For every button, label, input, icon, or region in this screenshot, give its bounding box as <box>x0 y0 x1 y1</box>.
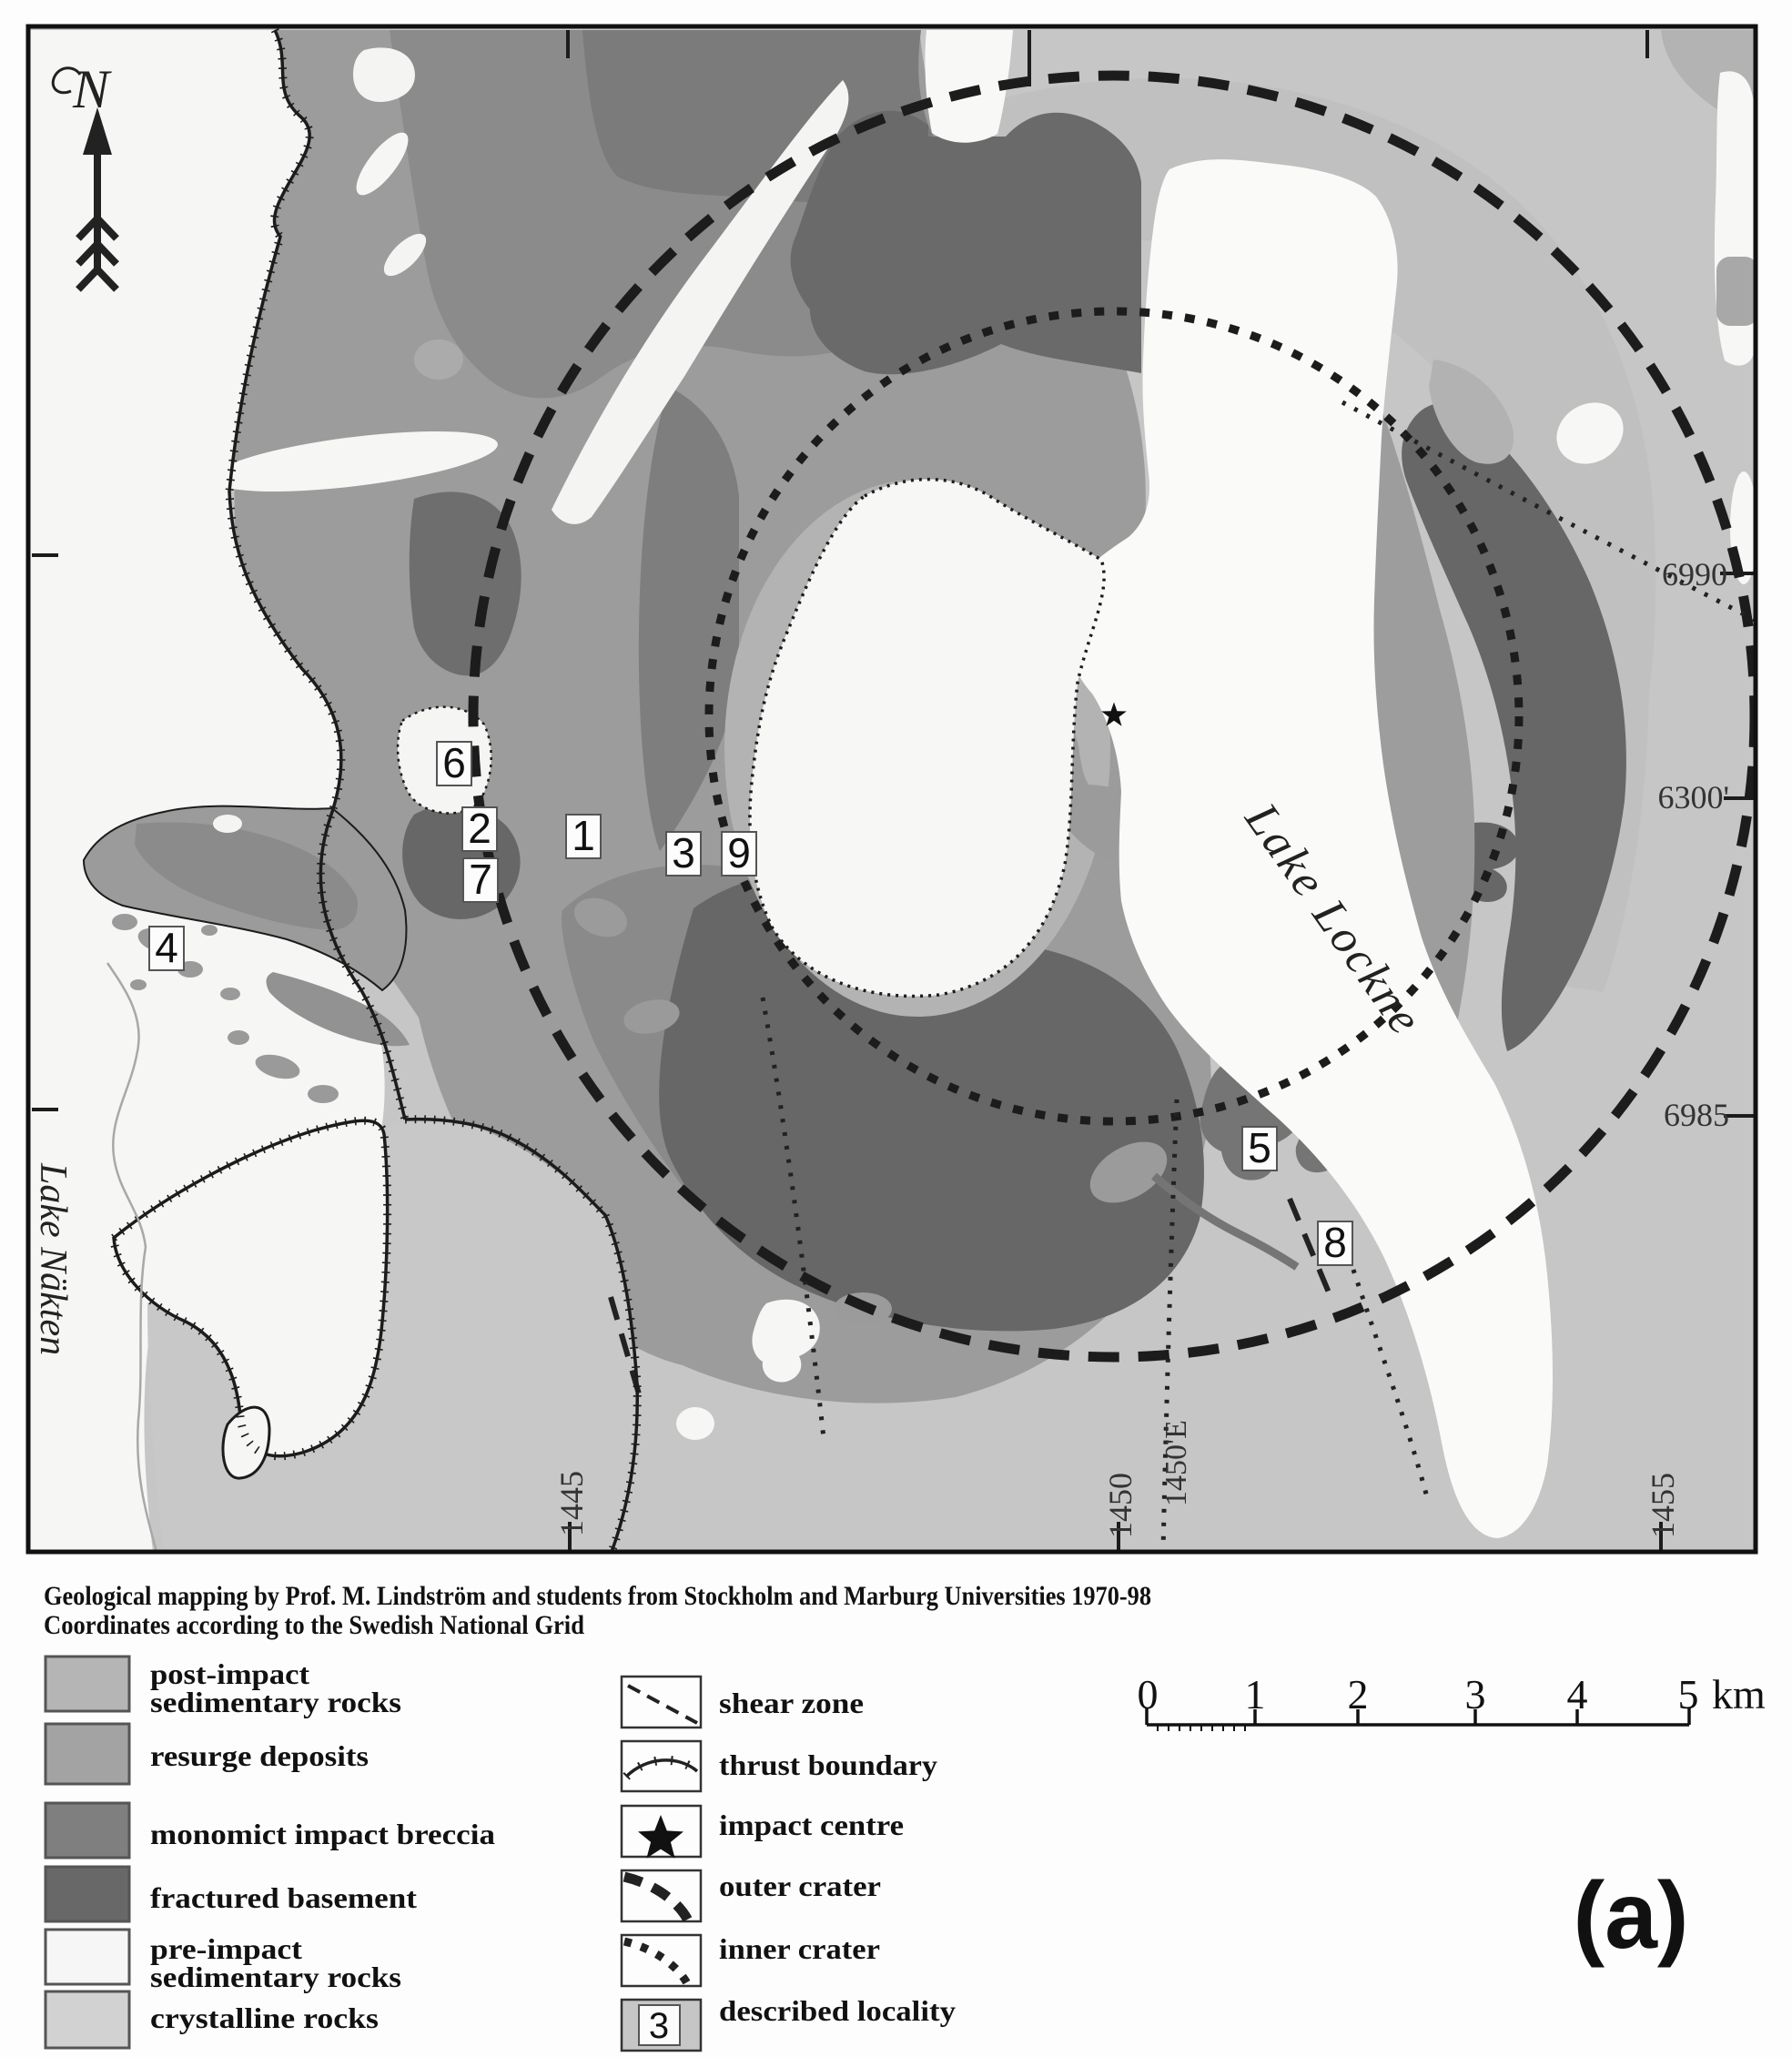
svg-text:4: 4 <box>155 924 178 971</box>
svg-text:9: 9 <box>727 829 751 877</box>
svg-text:7: 7 <box>469 856 492 903</box>
svg-text:3: 3 <box>672 829 695 877</box>
svg-text:6990: 6990 <box>1662 556 1727 593</box>
svg-text:resurge deposits: resurge deposits <box>150 1739 369 1772</box>
svg-text:2: 2 <box>468 805 491 852</box>
svg-text:sedimentary rocks: sedimentary rocks <box>150 1686 401 1718</box>
svg-text:(a): (a) <box>1573 1863 1688 1969</box>
svg-text:5: 5 <box>1248 1124 1271 1171</box>
svg-text:8: 8 <box>1323 1219 1347 1266</box>
svg-text:inner crater: inner crater <box>719 1932 880 1965</box>
svg-text:Geological mapping by Prof. M.: Geological mapping by Prof. M. Lindström… <box>44 1581 1151 1611</box>
svg-text:km: km <box>1712 1671 1766 1718</box>
svg-text:1450: 1450 <box>1102 1473 1139 1538</box>
svg-text:crystalline rocks: crystalline rocks <box>150 2001 379 2034</box>
svg-text:sedimentary rocks: sedimentary rocks <box>150 1961 401 1993</box>
svg-text:1455: 1455 <box>1645 1473 1681 1538</box>
svg-text:6985: 6985 <box>1664 1097 1729 1133</box>
svg-text:6300': 6300' <box>1658 779 1730 816</box>
svg-text:thrust boundary: thrust boundary <box>719 1748 937 1781</box>
svg-text:described locality: described locality <box>719 1994 956 2027</box>
svg-text:1: 1 <box>572 812 595 859</box>
svg-text:1445: 1445 <box>553 1471 590 1536</box>
svg-text:shear zone: shear zone <box>719 1687 864 1719</box>
svg-text:6: 6 <box>442 739 466 786</box>
svg-text:Coordinates according to the S: Coordinates according to the Swedish Nat… <box>44 1610 584 1640</box>
svg-text:outer crater: outer crater <box>719 1870 881 1902</box>
svg-text:impact centre: impact centre <box>719 1809 904 1841</box>
svg-text:N: N <box>72 59 112 119</box>
svg-text:3: 3 <box>649 2006 669 2046</box>
svg-text:monomict impact breccia: monomict impact breccia <box>150 1818 495 1850</box>
svg-text:Lake Näkten: Lake Näkten <box>32 1162 74 1355</box>
svg-text:fractured basement: fractured basement <box>150 1881 417 1914</box>
svg-text:1450'E: 1450'E <box>1159 1420 1193 1506</box>
